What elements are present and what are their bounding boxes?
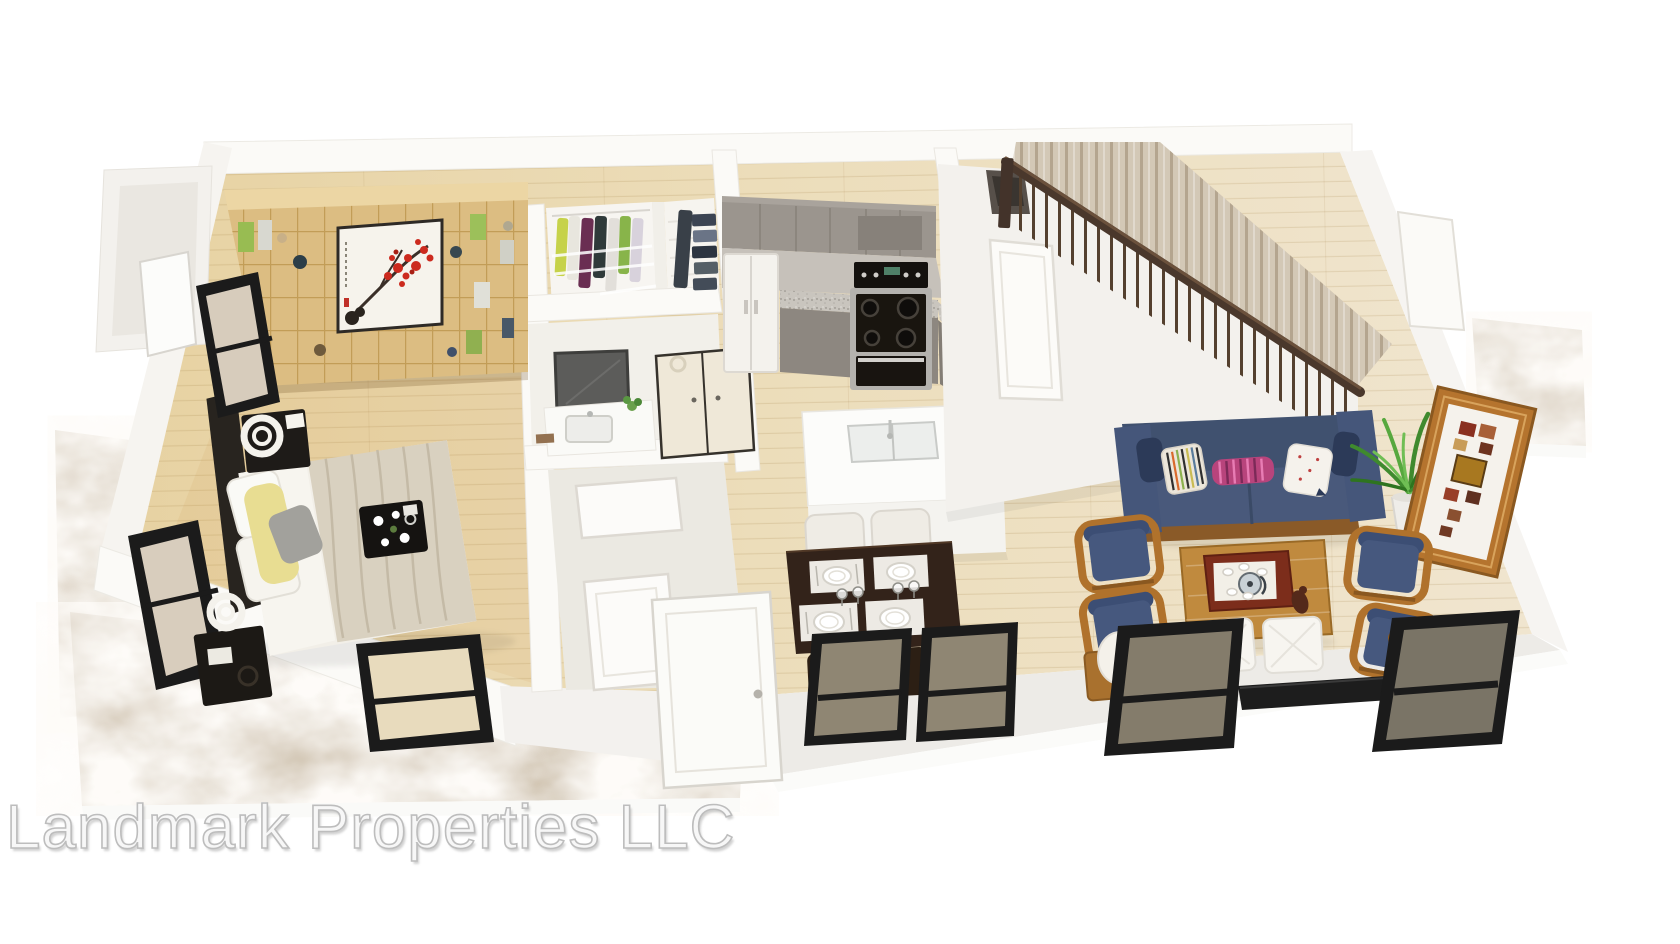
- bathroom-door: [576, 478, 682, 538]
- folded-linens: [692, 214, 718, 291]
- pink-striped-pillow: [1211, 456, 1275, 486]
- breakfast-tray: [359, 499, 429, 558]
- ottoman: [1263, 616, 1324, 673]
- vanity-sink: [566, 416, 612, 442]
- counter-tray: [536, 434, 554, 444]
- floorplan-rendering: Landmark Properties LLC: [0, 0, 1680, 944]
- front-door: [652, 592, 782, 788]
- striped-pillow: [1160, 443, 1207, 495]
- refrigerator: [724, 254, 778, 372]
- front-window-3: [1104, 618, 1244, 756]
- front-window-1: [804, 628, 912, 746]
- alcove-door: [140, 252, 196, 356]
- range-oven: [850, 262, 932, 390]
- faucet: [587, 411, 593, 417]
- white-pillow: [1282, 443, 1333, 497]
- window-bedroom-south: [356, 634, 494, 752]
- range-hood: [858, 216, 922, 250]
- plum-blossom-artwork: [338, 220, 442, 332]
- door-knob: [754, 690, 763, 699]
- front-window-4: [1372, 610, 1520, 752]
- nightstand-north: [241, 409, 311, 473]
- watermark-text: Landmark Properties LLC: [6, 792, 735, 863]
- front-window-2: [916, 622, 1018, 742]
